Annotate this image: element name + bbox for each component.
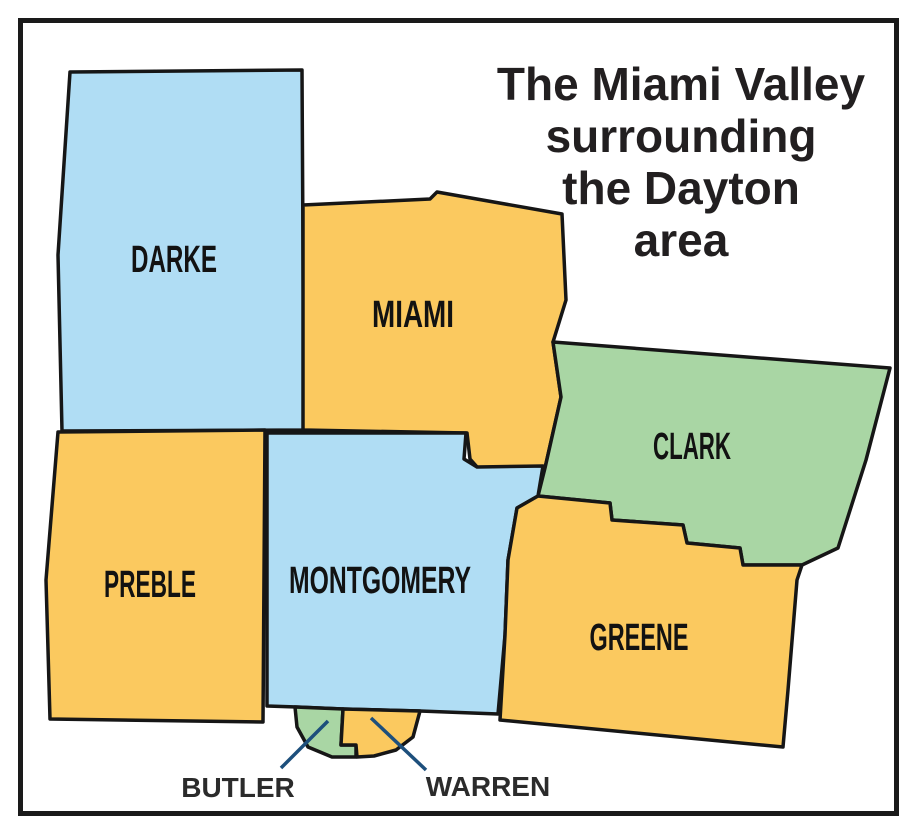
county-label-miami: MIAMI	[372, 294, 454, 336]
title-line-2: surrounding	[546, 110, 817, 162]
title-line-4: area	[634, 214, 729, 266]
county-label-montgomery: MONTGOMERY	[289, 560, 471, 602]
county-label-clark: CLARK	[653, 426, 731, 468]
county-label-darke: DARKE	[131, 239, 217, 281]
callout-label-warren: WARREN	[426, 771, 550, 802]
title-line-1: The Miami Valley	[497, 58, 866, 110]
county-label-greene: GREENE	[590, 617, 689, 659]
figure-canvas: DARKEMIAMICLARKPREBLEMONTGOMERYGREENE BU…	[0, 0, 917, 838]
title-line-3: the Dayton	[562, 162, 800, 214]
miami-valley-map: DARKEMIAMICLARKPREBLEMONTGOMERYGREENE BU…	[0, 0, 917, 838]
county-label-preble: PREBLE	[104, 564, 196, 606]
callout-label-butler: BUTLER	[181, 772, 295, 803]
